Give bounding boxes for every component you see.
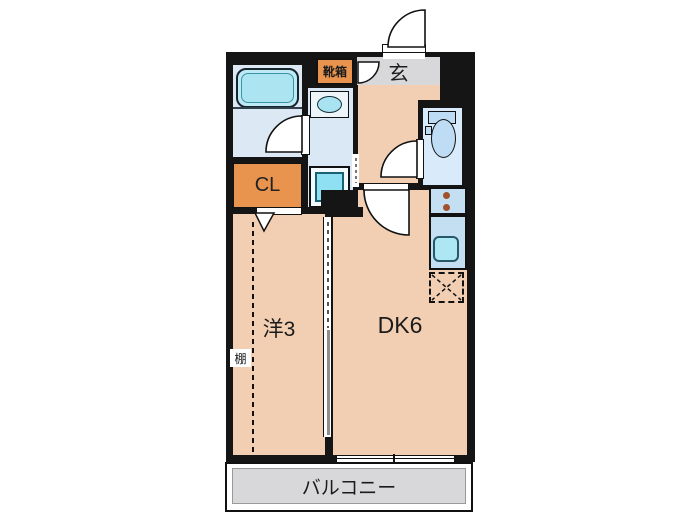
balcony-label: バルコニー [302, 473, 397, 500]
bathtub-deck-edge [233, 107, 302, 109]
bathtub-basin [241, 73, 294, 103]
washroom-folding-door-track [355, 158, 357, 183]
toilet-door [416, 139, 424, 179]
washbasin-bowl [317, 96, 342, 113]
sliding-partition-track [327, 222, 329, 328]
refrigerator-space [429, 272, 464, 303]
closet: CL [233, 163, 302, 208]
entry-door [382, 44, 426, 53]
entry-door-swing [388, 10, 425, 47]
shelf-label-box: 棚 [230, 349, 251, 367]
shoe-box: 靴箱 [316, 58, 354, 85]
dk-door [363, 183, 409, 191]
entry-opening [383, 52, 425, 59]
western-room-label: 洋3 [233, 313, 325, 343]
balcony-floor: バルコニー [232, 468, 466, 504]
shoe-box-label: 靴箱 [323, 63, 347, 80]
shelf-label: 棚 [234, 350, 246, 367]
closet-label: CL [255, 174, 281, 197]
burner-icon [443, 192, 450, 199]
entrance-area: 玄 [357, 57, 440, 87]
toilet-bowl [431, 119, 456, 158]
dining-kitchen-label: DK6 [333, 312, 467, 339]
bathroom-door [301, 115, 310, 155]
sliding-window-rail [336, 458, 455, 459]
entrance-label: 玄 [389, 57, 409, 86]
closet-door [256, 207, 302, 215]
sliding-partition-panel [327, 330, 330, 435]
gas-burner-unit [429, 187, 467, 215]
floor-plan: CL 玄 バルコニー 棚 靴箱 洋3 D [0, 0, 700, 525]
burner-icon [443, 204, 450, 211]
kitchen-sink [433, 236, 459, 262]
toilet-flush-handle [425, 126, 432, 135]
